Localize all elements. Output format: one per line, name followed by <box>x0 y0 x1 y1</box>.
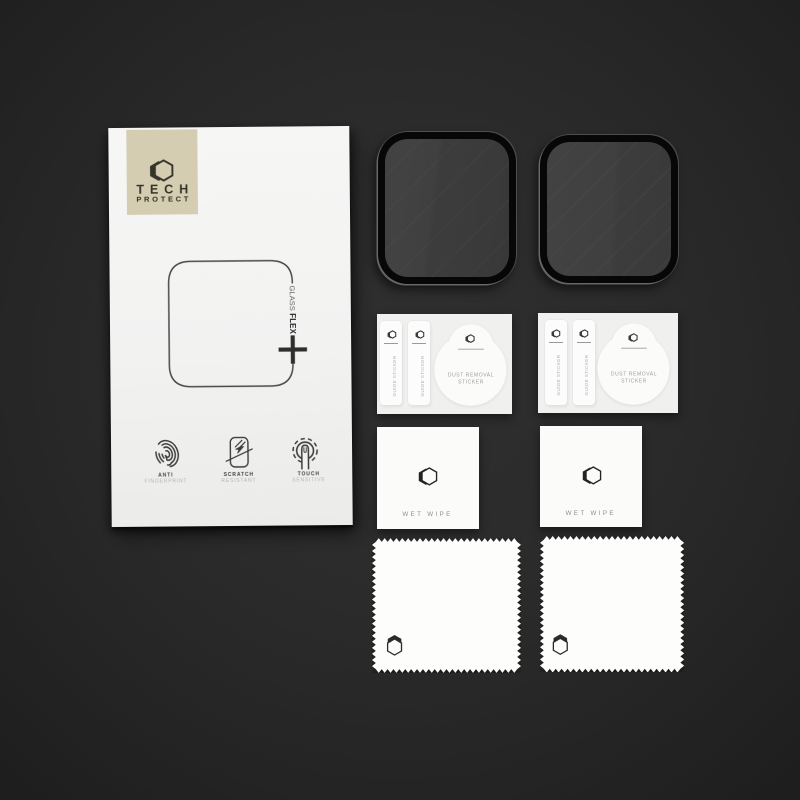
svg-text:DUST REMOVAL: DUST REMOVAL <box>447 372 493 378</box>
svg-text:DUST REMOVAL: DUST REMOVAL <box>611 371 657 377</box>
svg-text:STICKER: STICKER <box>458 379 484 385</box>
svg-text:STICKER: STICKER <box>621 379 647 385</box>
